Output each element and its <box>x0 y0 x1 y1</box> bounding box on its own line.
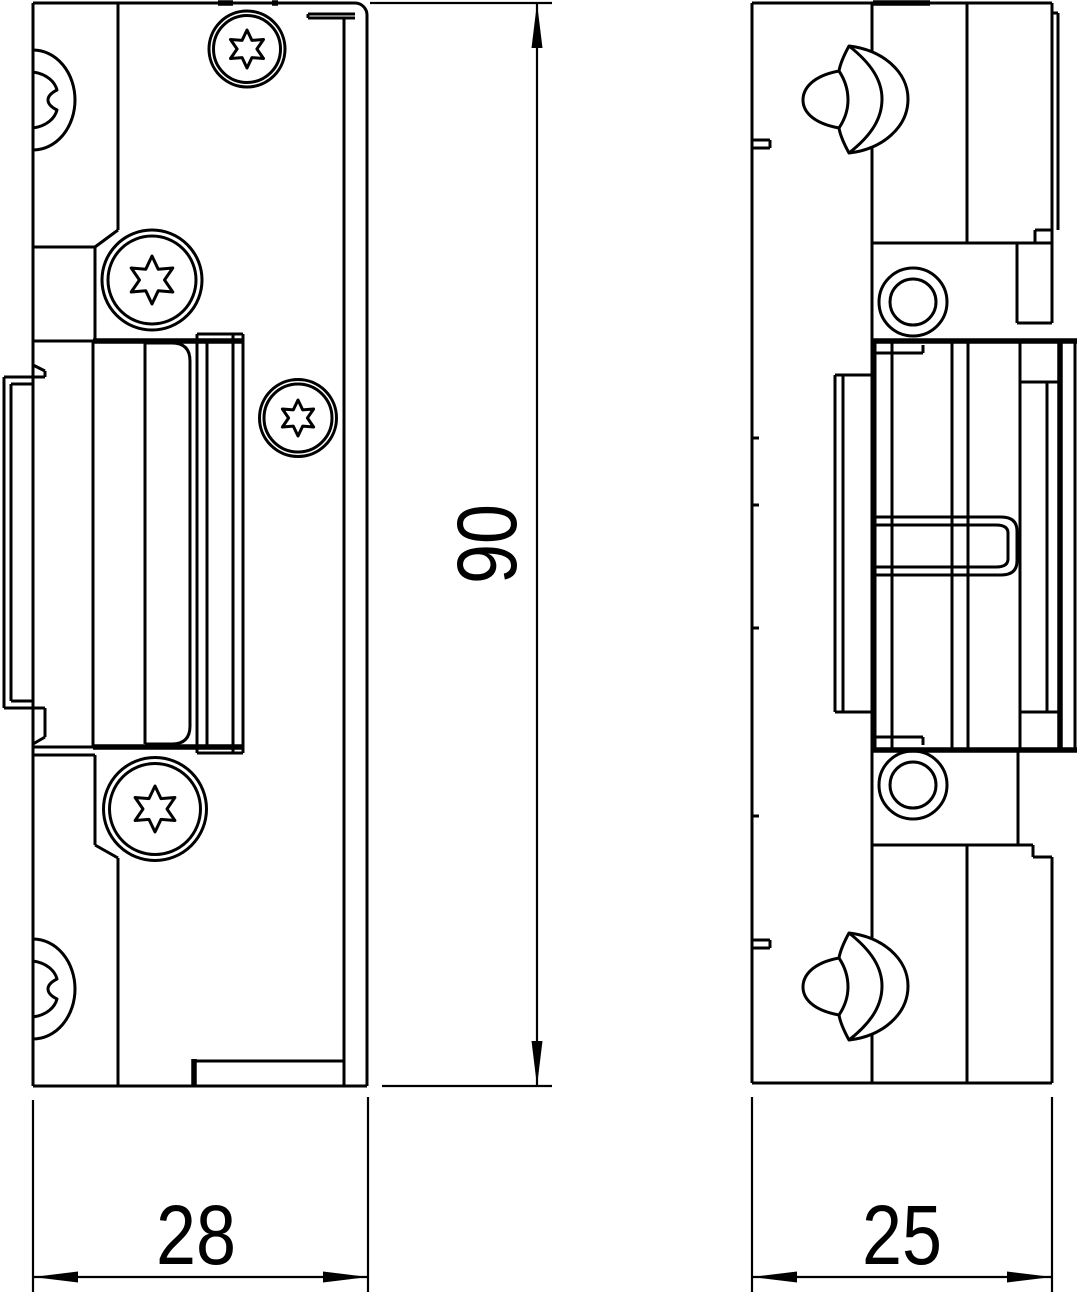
front-height-value: 90 <box>440 504 534 584</box>
front-view-outline <box>33 3 367 1086</box>
arrowhead-right-icon <box>323 1272 368 1283</box>
dimension-front-width: 28 <box>33 1097 368 1292</box>
torx-screw-center <box>260 380 337 457</box>
arrowhead-left-icon <box>752 1272 797 1283</box>
latch-keeper-block <box>93 334 243 753</box>
edge-tab-bottom <box>752 940 770 948</box>
electric-strike-drawing: 28 90 25 <box>0 0 1080 1292</box>
arrowhead-up-icon <box>532 3 543 48</box>
arrowhead-right-icon <box>1007 1272 1052 1283</box>
edge-pin-profile-top <box>33 50 75 150</box>
edge-pin-profile-bottom <box>33 939 75 1039</box>
mounting-hole-ring-bottom <box>879 751 947 819</box>
side-width-value: 25 <box>862 1188 942 1282</box>
front-width-value: 28 <box>156 1188 236 1282</box>
side-view-outline <box>752 3 1058 1083</box>
torx-screw-lower <box>104 758 207 861</box>
edge-tab-top <box>752 140 770 148</box>
front-view <box>4 3 367 1086</box>
strike-lip-jaw <box>4 365 45 744</box>
locating-pin-dome-bottom <box>803 933 908 1040</box>
technical-drawing-page: 28 90 25 <box>0 0 1080 1292</box>
locating-pin-dome-top <box>803 46 908 153</box>
arrowhead-left-icon <box>33 1272 78 1283</box>
torx-screw-top <box>209 11 285 87</box>
dimension-side-width: 25 <box>752 1097 1052 1292</box>
dimension-front-height: 90 <box>370 3 552 1086</box>
arrowhead-down-icon <box>532 1041 543 1086</box>
mounting-hole-ring-top <box>879 268 947 336</box>
torx-screw-upper-middle <box>102 230 202 330</box>
side-view <box>752 3 1077 1083</box>
side-lower-body <box>872 750 1052 1083</box>
